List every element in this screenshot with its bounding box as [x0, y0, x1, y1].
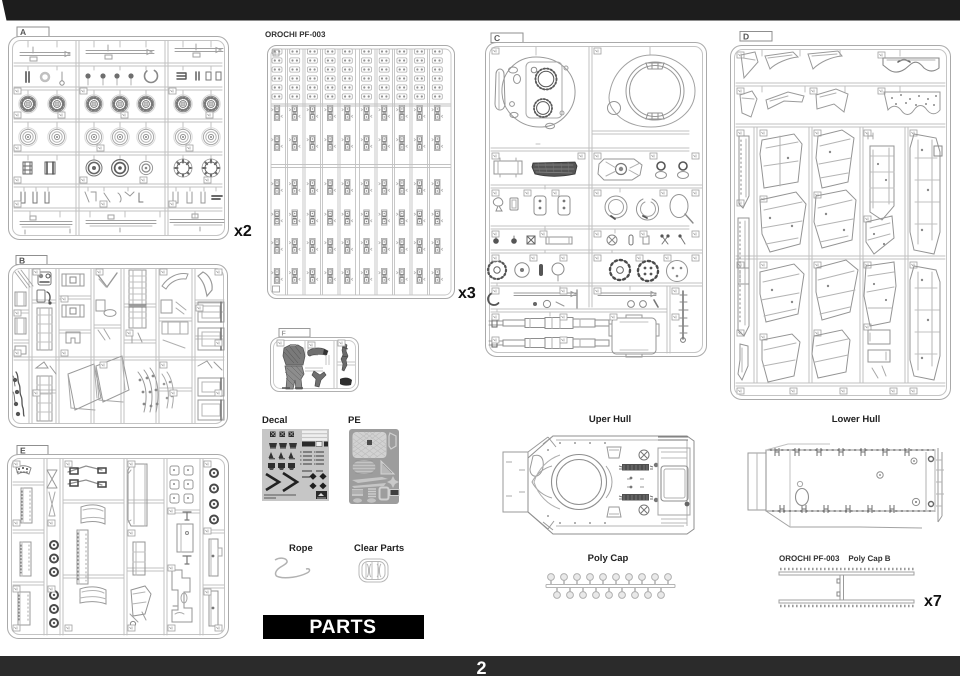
svg-text:C: C — [494, 33, 500, 43]
svg-text:Rope: Rope — [289, 543, 313, 554]
svg-text:F: F — [282, 331, 287, 338]
svg-text:Decal: Decal — [262, 415, 287, 426]
svg-text:T: T — [274, 52, 277, 58]
svg-text:Clear Parts: Clear Parts — [354, 543, 404, 554]
svg-text:Uper Hull: Uper Hull — [589, 414, 631, 425]
svg-text:Poly Cap: Poly Cap — [588, 553, 629, 564]
svg-text:D: D — [743, 32, 749, 42]
svg-text:2: 2 — [476, 658, 486, 678]
svg-text:PE: PE — [348, 415, 361, 426]
svg-text:x2: x2 — [234, 223, 252, 240]
svg-text:x3: x3 — [458, 285, 476, 302]
svg-text:OROCHI PF-003 Poly Cap B: OROCHI PF-003 Poly Cap B — [779, 554, 891, 563]
svg-text:OROCHI PF-003: OROCHI PF-003 — [265, 30, 326, 39]
svg-text:x7: x7 — [924, 593, 942, 610]
svg-text:Lower Hull: Lower Hull — [832, 414, 881, 425]
svg-text:A: A — [20, 27, 26, 37]
svg-text:PARTS: PARTS — [309, 616, 376, 638]
